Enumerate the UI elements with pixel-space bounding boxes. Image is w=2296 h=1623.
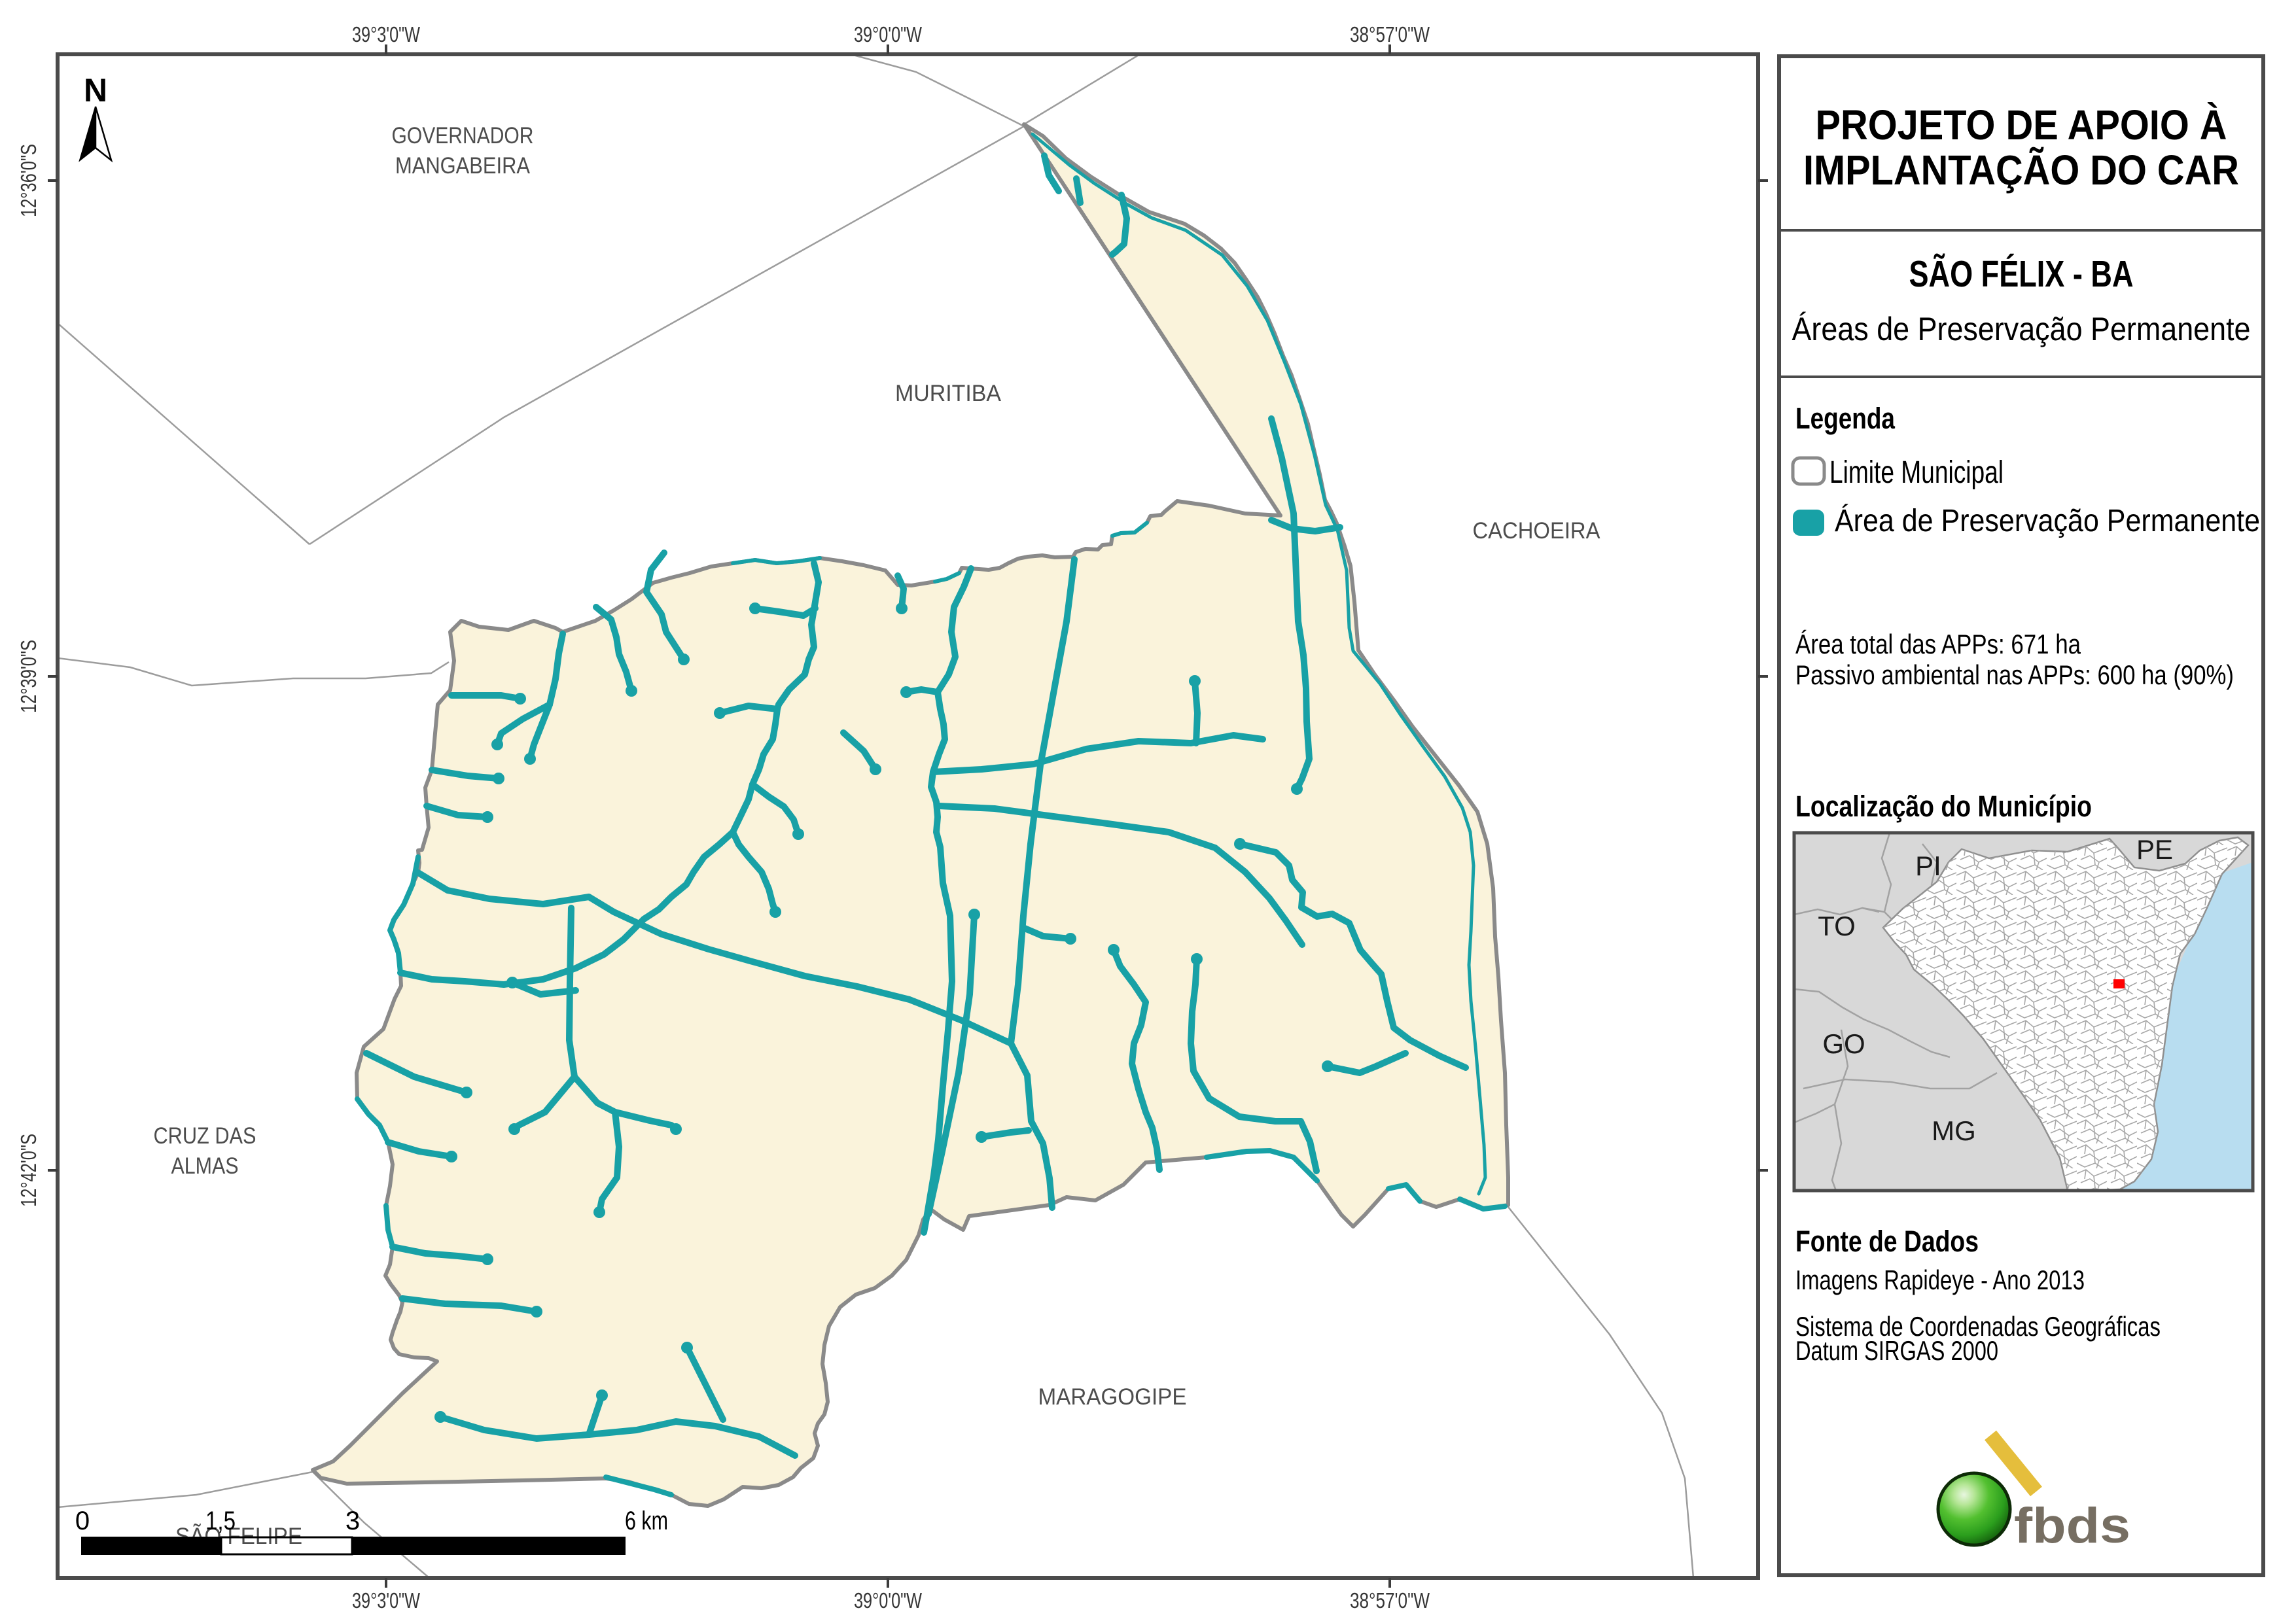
- svg-text:fbds: fbds: [2014, 1498, 2130, 1554]
- svg-text:PROJETO DE APOIO À: PROJETO DE APOIO À: [1816, 101, 2227, 148]
- svg-text:38°57'0"W: 38°57'0"W: [1350, 1588, 1430, 1613]
- svg-text:39°0'0"W: 39°0'0"W: [854, 22, 923, 46]
- svg-text:12°36'0"S: 12°36'0"S: [16, 144, 41, 217]
- svg-text:Área total das APPs: 671 ha: Área total das APPs: 671 ha: [1795, 629, 2081, 659]
- svg-text:Localização do Município: Localização do Município: [1795, 790, 2092, 823]
- svg-text:12°39'0"S: 12°39'0"S: [16, 640, 41, 713]
- svg-text:Área de Preservação Permanente: Área de Preservação Permanente: [1835, 504, 2260, 538]
- svg-text:IMPLANTAÇÃO DO CAR: IMPLANTAÇÃO DO CAR: [1803, 147, 2239, 194]
- svg-text:0: 0: [75, 1507, 90, 1535]
- svg-text:ALMAS: ALMAS: [171, 1153, 239, 1179]
- svg-text:39°3'0"W: 39°3'0"W: [352, 22, 421, 46]
- svg-text:Legenda: Legenda: [1795, 402, 1896, 435]
- svg-text:SÃO FÉLIX - BA: SÃO FÉLIX - BA: [1909, 253, 2134, 295]
- svg-text:CACHOEIRA: CACHOEIRA: [1473, 518, 1601, 544]
- svg-text:PE: PE: [2136, 834, 2173, 865]
- svg-text:Fonte de Dados: Fonte de Dados: [1795, 1225, 1979, 1258]
- svg-text:6 km: 6 km: [625, 1507, 668, 1535]
- svg-text:Áreas de Preservação Permanent: Áreas de Preservação Permanente: [1792, 311, 2251, 347]
- svg-text:Datum SIRGAS 2000: Datum SIRGAS 2000: [1795, 1335, 1998, 1366]
- svg-text:MARAGOGIPE: MARAGOGIPE: [1038, 1384, 1187, 1410]
- svg-text:PI: PI: [1915, 850, 1941, 881]
- svg-text:Passivo ambiental nas APPs: 60: Passivo ambiental nas APPs: 600 ha (90%): [1795, 659, 2234, 690]
- svg-text:Limite Municipal: Limite Municipal: [1829, 455, 2004, 490]
- svg-text:MANGABEIRA: MANGABEIRA: [395, 153, 531, 179]
- svg-text:CRUZ DAS: CRUZ DAS: [154, 1123, 256, 1149]
- svg-text:TO: TO: [1818, 911, 1856, 941]
- svg-text:Imagens Rapideye - Ano 2013: Imagens Rapideye - Ano 2013: [1795, 1265, 2085, 1295]
- svg-text:GOVERNADOR: GOVERNADOR: [392, 123, 534, 148]
- svg-text:39°3'0"W: 39°3'0"W: [352, 1588, 421, 1613]
- svg-text:GO: GO: [1822, 1028, 1865, 1059]
- svg-text:39°0'0"W: 39°0'0"W: [854, 1588, 923, 1613]
- svg-text:12°42'0"S: 12°42'0"S: [16, 1134, 41, 1207]
- svg-text:N: N: [84, 72, 107, 109]
- svg-text:1,5: 1,5: [205, 1507, 236, 1535]
- svg-text:MG: MG: [1932, 1115, 1976, 1146]
- svg-text:3: 3: [345, 1507, 360, 1535]
- svg-text:MURITIBA: MURITIBA: [895, 381, 1002, 406]
- svg-text:38°57'0"W: 38°57'0"W: [1350, 22, 1430, 46]
